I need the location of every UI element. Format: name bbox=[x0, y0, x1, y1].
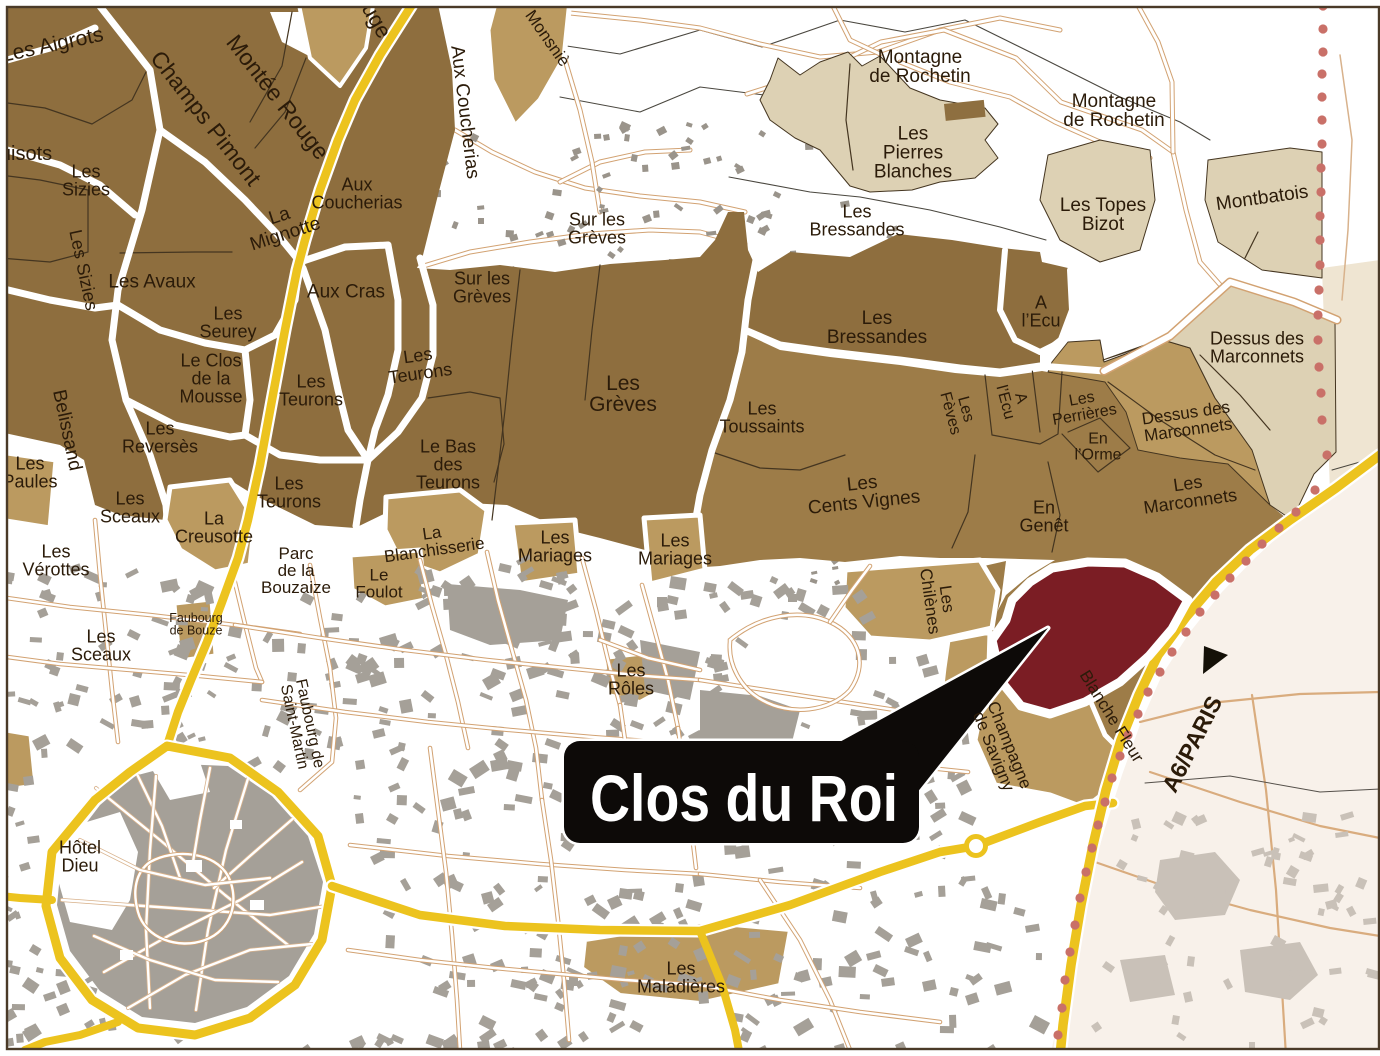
svg-text:Sur lesGrèves: Sur lesGrèves bbox=[453, 268, 511, 306]
svg-text:Montagnede Rochetin: Montagnede Rochetin bbox=[869, 47, 970, 87]
svg-text:Faubourgde Bouze: Faubourgde Bouze bbox=[169, 611, 223, 638]
svg-text:Dessus desMarconnets: Dessus desMarconnets bbox=[1210, 328, 1304, 366]
svg-text:Montagnede Rochetin: Montagnede Rochetin bbox=[1063, 91, 1164, 131]
svg-text:HôtelDieu: HôtelDieu bbox=[59, 837, 101, 875]
svg-text:Sur lesGrèves: Sur lesGrèves bbox=[568, 209, 626, 247]
svg-text:Clos du Roi: Clos du Roi bbox=[590, 761, 898, 835]
svg-text:Aux Cras: Aux Cras bbox=[307, 282, 385, 303]
svg-text:Les Avaux: Les Avaux bbox=[108, 272, 196, 293]
